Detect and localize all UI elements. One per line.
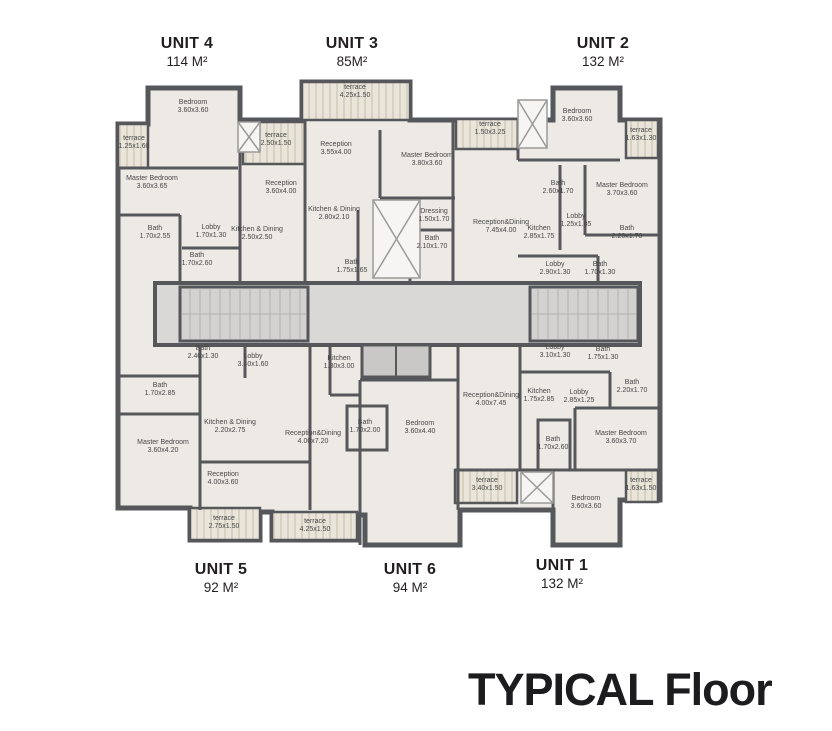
unit-2-label: UNIT 2 132 M² [577, 35, 629, 69]
unit-6-name: UNIT 6 [384, 561, 436, 579]
unit-1-area: 132 M² [536, 576, 588, 591]
floor-plan-drawing [0, 0, 832, 731]
floor-plan-page: Bedroom3.60x3.60terrace1.25x1.60terrace2… [0, 0, 832, 731]
unit-1-label: UNIT 1 132 M² [536, 557, 588, 591]
unit-6-area: 94 M² [384, 580, 436, 595]
unit-5-label: UNIT 5 92 M² [195, 561, 247, 595]
staircase-right [530, 287, 638, 341]
unit-3-name: UNIT 3 [326, 35, 378, 53]
unit-2-area: 132 M² [577, 54, 629, 69]
unit-3-label: UNIT 3 85M² [326, 35, 378, 69]
unit-4-label: UNIT 4 114 M² [161, 35, 213, 69]
unit-4-name: UNIT 4 [161, 35, 213, 53]
floor-title: TYPICAL Floor [468, 664, 772, 716]
unit-4-area: 114 M² [161, 54, 213, 69]
staircase-left [180, 287, 308, 341]
unit-5-area: 92 M² [195, 580, 247, 595]
unit-2-name: UNIT 2 [577, 35, 629, 53]
unit-5-name: UNIT 5 [195, 561, 247, 579]
unit-6-label: UNIT 6 94 M² [384, 561, 436, 595]
unit-3-area: 85M² [326, 54, 378, 69]
unit-1-name: UNIT 1 [536, 557, 588, 575]
